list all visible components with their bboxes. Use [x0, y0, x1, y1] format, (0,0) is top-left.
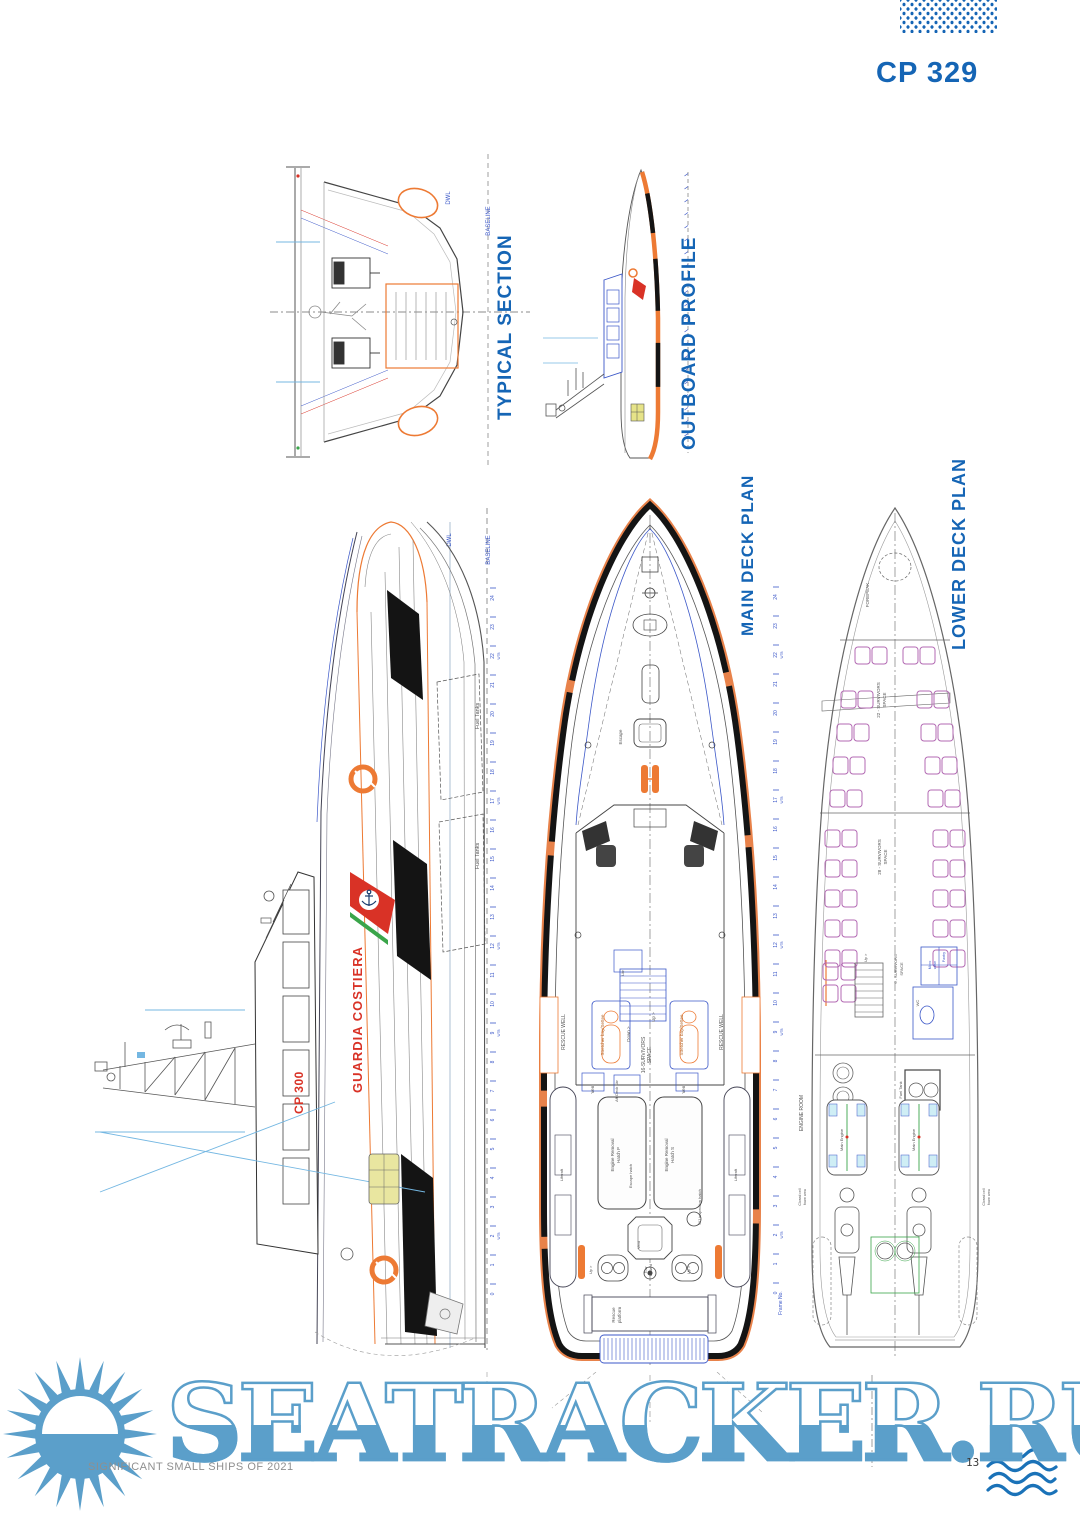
handrail-orange	[578, 1245, 585, 1279]
horn	[261, 918, 271, 923]
svg-text:17: 17	[773, 797, 779, 803]
foam-area-label: Closed cell	[982, 1188, 986, 1205]
stern-window	[631, 404, 644, 421]
fuel-tank-outline	[437, 674, 483, 800]
svg-text:23: 23	[490, 624, 496, 630]
mast-truss	[95, 1022, 255, 1107]
svg-text:6: 6	[490, 1118, 496, 1121]
svg-text:6: 6	[773, 1117, 779, 1120]
svg-text:12: 12	[490, 943, 496, 949]
forepeak-label: FOREPEAK	[865, 583, 870, 608]
main-engine-port	[827, 1100, 867, 1175]
svg-text:7: 7	[773, 1088, 779, 1091]
svg-text:19: 19	[773, 739, 779, 745]
svg-text:22: 22	[773, 652, 779, 658]
svg-text:WTB: WTB	[780, 1231, 784, 1238]
main-deck-plan-title: MAIN DECK PLAN	[738, 475, 758, 636]
svg-text:10: 10	[490, 1001, 496, 1007]
page-title: CP 329	[876, 57, 978, 90]
footer-title: SIGNIFICANT SMALL SHIPS OF 2021	[88, 1461, 294, 1473]
liferaft-pod-stbd	[724, 1087, 750, 1287]
rescue-well-label: RESCUE WELL	[719, 1014, 725, 1050]
svg-text:9: 9	[773, 1030, 779, 1033]
lifebuoy	[351, 767, 375, 791]
wc-label: WC	[915, 1000, 920, 1007]
main-engine-label: Main Engine	[839, 1128, 844, 1151]
engine-box-section	[386, 284, 458, 368]
stretcher-label: Stretcher bay/Settee	[600, 1014, 605, 1056]
rescue-well-label: RESCUE WELL	[561, 1014, 567, 1050]
svg-text:14: 14	[773, 884, 779, 890]
svg-text:15: 15	[490, 856, 496, 862]
up-label: Up >	[863, 953, 868, 962]
sun-logo	[0, 1356, 162, 1513]
svg-text:5: 5	[773, 1146, 779, 1149]
svg-text:7: 7	[490, 1089, 496, 1092]
svg-text:24: 24	[490, 595, 496, 601]
svg-text:24: 24	[773, 594, 779, 600]
main-deck-frame-scale: 242322WTB2120191817WTB1615141312WTB11109…	[773, 587, 784, 1294]
fuel-tanks-label: Fuel Tanks	[475, 703, 481, 730]
svg-text:9: 9	[490, 1031, 496, 1034]
liferaft-label: Liferaft	[733, 1168, 738, 1181]
svg-text:18: 18	[773, 768, 779, 774]
rescue-well-stbd	[742, 997, 760, 1073]
page-number: 13	[966, 1456, 979, 1469]
svg-text:16: 16	[773, 826, 779, 832]
typical-section-title: TYPICAL SECTION	[495, 234, 517, 420]
inboard-profile-drawing: DWL BASELINE	[85, 492, 535, 1377]
up-label: Up >	[651, 1012, 656, 1022]
svg-text:WTB: WTB	[497, 1029, 501, 1036]
mast	[546, 368, 604, 418]
svg-text:14: 14	[490, 885, 496, 891]
svg-text:0: 0	[490, 1292, 496, 1295]
rescue-well-port	[540, 997, 558, 1073]
baseline-label: BASELINE	[486, 535, 492, 564]
escape-hatch-aft	[628, 1217, 672, 1259]
helm-seat	[596, 845, 616, 867]
survivors22-label: 22 - SURVIVORS	[876, 682, 881, 717]
lower-deck-plan-title: LOWER DECK PLAN	[949, 458, 970, 650]
survivors6-label: 6 - SURVIVORS	[893, 954, 898, 984]
tow-bollard-label: Tow	[644, 1266, 648, 1273]
survivors16-label: SPACE	[647, 1046, 653, 1063]
svg-text:11: 11	[773, 971, 779, 976]
up-aft-label: Up >	[588, 1265, 593, 1274]
svg-text:5: 5	[490, 1147, 496, 1150]
svg-text:17: 17	[490, 798, 496, 804]
svg-text:1: 1	[773, 1262, 779, 1265]
baseline-label: BASELINE	[486, 206, 492, 235]
sheer-line	[317, 532, 357, 1344]
survivors28-label: SPACE	[883, 850, 888, 865]
rescue-platform-label: platform	[617, 1307, 622, 1324]
header-dot-pattern	[900, 0, 997, 33]
stretcher-label: Stretcher bay/Settee	[679, 1014, 684, 1056]
liferaft-pod-port	[550, 1087, 576, 1287]
svg-text:4: 4	[490, 1176, 496, 1179]
svg-text:21: 21	[490, 682, 496, 688]
foam-area-label: foam area	[803, 1189, 807, 1205]
svg-text:WTB: WTB	[497, 942, 501, 949]
fender-black-patch	[393, 840, 431, 980]
svg-text:4: 4	[773, 1175, 779, 1178]
down-label: Down >	[626, 1026, 631, 1042]
fuel-tanks-label: Fuel Tanks	[475, 843, 481, 870]
svg-text:10: 10	[773, 1000, 779, 1006]
nav-light-mark	[296, 446, 299, 449]
fender-section	[395, 184, 441, 222]
svg-text:WTB: WTB	[780, 651, 784, 658]
survivors22-label: SPACE	[882, 693, 887, 708]
searchlight	[264, 891, 274, 901]
pantry-label: Pantry	[942, 952, 946, 962]
svg-text:22: 22	[490, 653, 496, 659]
engine-removal-hatch-p	[598, 1097, 646, 1209]
hull-number-text: CP 300	[292, 1071, 306, 1114]
page: CP 329 TYPICAL SECTION OUTBOARD PROFILE …	[0, 0, 1080, 1513]
svg-text:WTB: WTB	[780, 1028, 784, 1035]
svg-text:WTB: WTB	[497, 652, 501, 659]
microwave-label: Micro	[928, 961, 932, 970]
svg-text:18: 18	[490, 769, 496, 775]
engine-removal-hatch-s	[654, 1097, 702, 1209]
escape-hatch-label: Escape hatch	[628, 1164, 633, 1188]
liferaft-label: Liferaft	[559, 1168, 564, 1181]
rescue-platform-box	[592, 1297, 708, 1331]
survivors6-label: SPACE	[899, 962, 904, 976]
survivors28-label: 28 - SURVIVORS	[877, 839, 882, 874]
helm-seat	[684, 845, 704, 867]
handrail-orange	[715, 1245, 722, 1279]
svg-text:19: 19	[490, 740, 496, 746]
svg-text:0: 0	[773, 1291, 779, 1294]
lifebuoy	[372, 1258, 396, 1282]
outboard-profile-title: OUTBOARD PROFILE	[679, 237, 701, 450]
tow-bollard-label: Bollard	[649, 1264, 653, 1276]
svg-text:11: 11	[490, 972, 496, 977]
svg-text:13: 13	[490, 914, 496, 920]
engine-hatch-s-label: Engine Removal	[664, 1138, 669, 1171]
dwl-label: DWL	[446, 191, 452, 205]
keel-line	[427, 522, 485, 1348]
engine-hatch-p-label: Engine Removal	[610, 1138, 615, 1171]
human-figure	[309, 302, 366, 330]
svg-text:WTB: WTB	[497, 1232, 501, 1239]
svg-text:3: 3	[773, 1204, 779, 1207]
wj-hatch-label: WJ inspection hatch	[697, 1189, 702, 1225]
fender-black-patch	[387, 590, 423, 700]
dwl-label: DWL	[447, 533, 453, 547]
engine-hatch-p-label: Hatch P	[616, 1147, 621, 1163]
fuel-tank-label: Fuel Tank	[898, 1081, 903, 1098]
svg-text:3: 3	[490, 1205, 496, 1208]
main-engine-stbd	[899, 1100, 939, 1175]
svg-text:WTB: WTB	[497, 797, 501, 804]
up-aft-label: Up >	[686, 1265, 691, 1274]
svg-text:8: 8	[773, 1059, 779, 1062]
svg-text:2: 2	[773, 1233, 779, 1236]
vent-aft-label: Vent	[636, 1240, 641, 1249]
typical-section-drawing: DWL BASELINE	[268, 146, 533, 476]
fuel-tank-outline	[439, 814, 485, 952]
svg-text:13: 13	[773, 913, 779, 919]
svg-text:23: 23	[773, 623, 779, 629]
nav-light-mark	[296, 174, 299, 177]
foam-area-label: foam area	[987, 1189, 991, 1205]
main-engine-label: Main Engine	[911, 1128, 916, 1151]
foam-area-label: Closed cell	[798, 1188, 802, 1205]
vent-label: Vent	[681, 1084, 686, 1094]
waterjet	[425, 1292, 463, 1334]
engine-hatch-s-label: Hatch S	[670, 1147, 675, 1163]
guardia-costiera-text: GUARDIA COSTIERA	[350, 946, 365, 1093]
svg-text:2: 2	[490, 1234, 496, 1237]
svg-text:16: 16	[490, 827, 496, 833]
escape-label: Escape	[618, 729, 623, 745]
svg-text:WTB: WTB	[780, 941, 784, 948]
watermark-text: SEATRACKER.RU	[166, 1370, 1080, 1476]
svg-text:WTB: WTB	[780, 796, 784, 803]
svg-text:15: 15	[773, 855, 779, 861]
svg-text:20: 20	[773, 710, 779, 716]
microwave-label: wave	[933, 961, 937, 969]
lkr-label: Lkr	[620, 970, 625, 976]
antenna	[137, 1052, 145, 1058]
aft-deck-lkr-label: Aft Deck Lkr	[614, 1079, 619, 1101]
rescue-platform-label: Rescue	[611, 1307, 616, 1323]
svg-text:21: 21	[773, 681, 779, 687]
svg-text:12: 12	[773, 942, 779, 948]
vent-label: Vent	[590, 1084, 595, 1094]
fender-section	[395, 402, 441, 440]
engine-room-label: ENGINE ROOM	[799, 1095, 805, 1131]
profile-frame-scale: 242322WTB2120191817WTB1615141312WTB11109…	[490, 588, 501, 1295]
svg-text:8: 8	[490, 1060, 496, 1063]
svg-text:1: 1	[490, 1263, 496, 1266]
svg-text:20: 20	[490, 711, 496, 717]
